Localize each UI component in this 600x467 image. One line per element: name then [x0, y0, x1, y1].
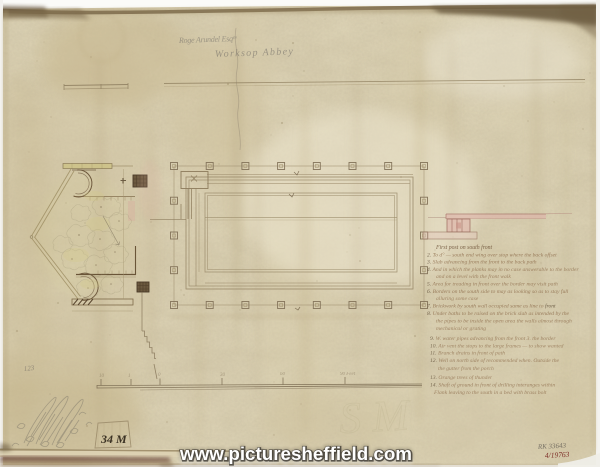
svg-text:10. Air vent the stops to the: 10. Air vent the stops to the large fram… — [430, 343, 564, 350]
svg-text:90 Feet: 90 Feet — [340, 372, 356, 377]
svg-text:mechanical or grating: mechanical or grating — [436, 326, 486, 332]
svg-text:the gutter from the porch: the gutter from the porch — [438, 365, 494, 372]
svg-text:60: 60 — [280, 372, 286, 377]
svg-text:and on a level with the front: and on a level with the front walk — [436, 273, 511, 280]
svg-text:11. Branch drains in front of: 11. Branch drains in front of path — [430, 350, 505, 357]
svg-text:123: 123 — [23, 364, 35, 373]
svg-text:13. Orange trees of thunder: 13. Orange trees of thunder — [430, 374, 493, 381]
svg-text:3. Slab advancing from the fro: 3. Slab advancing from the front to the … — [426, 259, 537, 266]
svg-text:the pipes to be inside the ope: the pipes to be inside the open area the… — [436, 319, 572, 325]
svg-text:Flank leaving to the south in: Flank leaving to the south in a bed with… — [433, 390, 547, 396]
svg-text:14. Shaft of ground in front o: 14. Shaft of ground in front of drilling… — [430, 382, 555, 389]
svg-text:10: 10 — [99, 374, 105, 379]
svg-text:First post on south front: First post on south front — [435, 244, 493, 251]
svg-text:9. W. water pipes advancing fr: 9. W. water pipes advancing from the fro… — [430, 335, 556, 342]
svg-text:34 M: 34 M — [100, 432, 127, 446]
svg-text:7. Brickwork by south wall occ: 7. Brickwork by south wall occupied same… — [427, 303, 556, 310]
svg-text:1: 1 — [128, 374, 131, 379]
svg-text:30: 30 — [220, 373, 226, 378]
svg-text:4/19763: 4/19763 — [545, 450, 570, 460]
svg-text:S M: S M — [338, 390, 412, 443]
svg-text:4. And in which the planks may: 4. And in which the planks may in no cas… — [427, 267, 579, 273]
svg-text:6. Borders on the south side t: 6. Borders on the south side to may as l… — [427, 288, 569, 295]
svg-text:12. Well on north side of reco: 12. Well on north side of recommended wh… — [430, 357, 560, 364]
svg-text:2. To d° — south end wing over: 2. To d° — south end wing over stop wher… — [427, 252, 557, 259]
svg-text:www.picturesheffield.com: www.picturesheffield.com — [179, 444, 412, 464]
svg-text:8. Under baths to be raised on: 8. Under baths to be raised on the brick… — [427, 311, 570, 317]
svg-text:5. Area for treading in front: 5. Area for treading in front over the b… — [427, 281, 558, 288]
svg-text:alluring some case: alluring some case — [436, 296, 479, 302]
